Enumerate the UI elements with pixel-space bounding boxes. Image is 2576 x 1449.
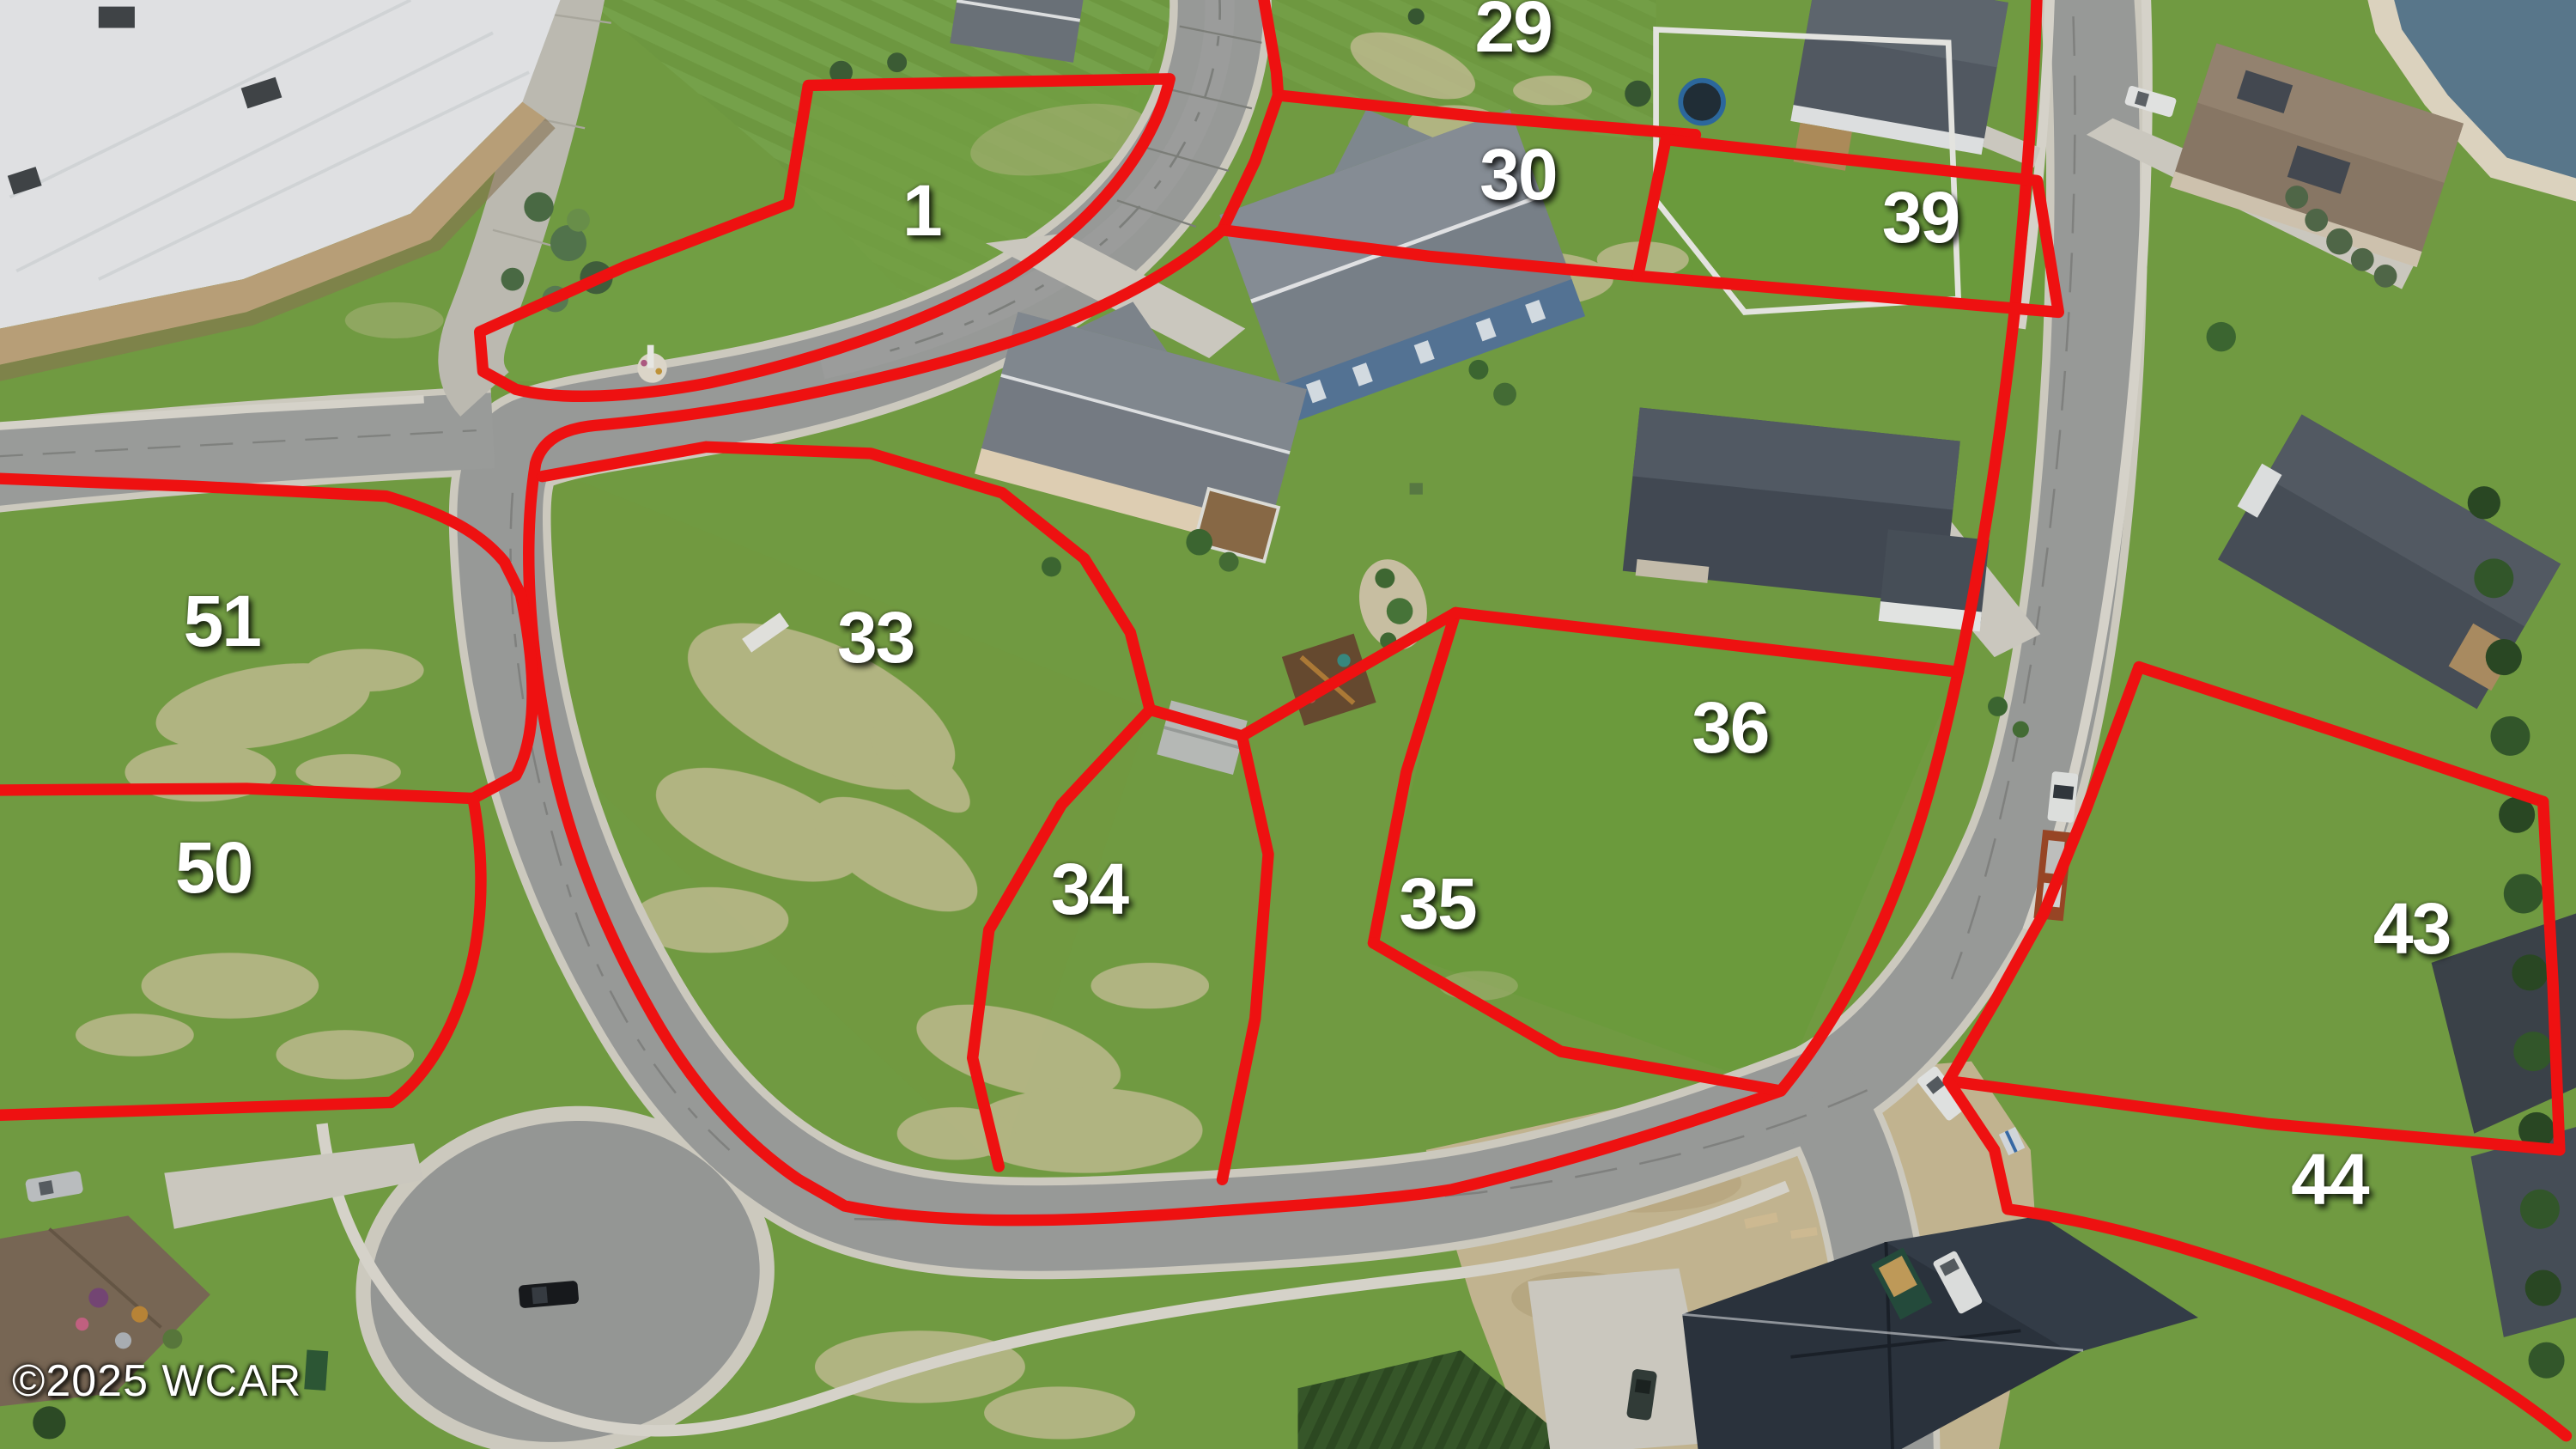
lot-label-30: 30 xyxy=(1479,138,1556,210)
lot-label-50: 50 xyxy=(175,831,252,904)
subdivision-aerial-svg xyxy=(0,0,2576,1449)
lot-label-44: 44 xyxy=(2291,1143,2367,1215)
lot-label-33: 33 xyxy=(837,601,914,673)
watermark: ©2025 WCAR xyxy=(12,1355,301,1407)
aerial-lot-map: 12930393334353643445051 ©2025 WCAR xyxy=(0,0,2576,1449)
lot-label-1: 1 xyxy=(902,174,941,247)
lot-label-35: 35 xyxy=(1399,868,1475,940)
lot-label-36: 36 xyxy=(1692,691,1768,764)
lot-label-34: 34 xyxy=(1051,853,1127,925)
lot-label-29: 29 xyxy=(1474,0,1551,63)
lot-label-39: 39 xyxy=(1882,181,1959,253)
lot-label-51: 51 xyxy=(184,585,260,657)
lot-label-43: 43 xyxy=(2373,892,2450,965)
photo-grain xyxy=(0,0,2576,1449)
